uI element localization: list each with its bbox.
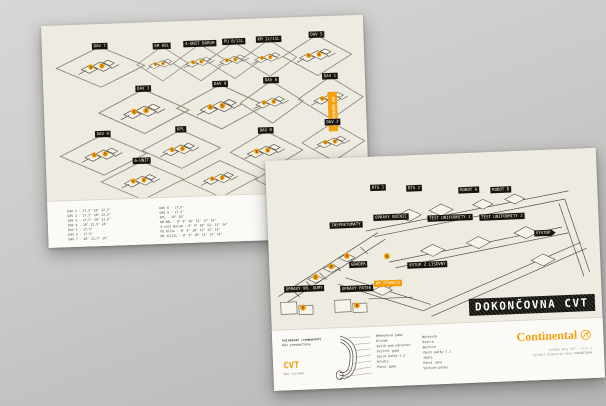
machine-label: 6-UNIT [133, 157, 151, 164]
machine-label: KM 08L [153, 42, 171, 49]
machine-tile: DAV 6 [239, 79, 304, 125]
cvt-sub-label: Náš výrobek [283, 372, 304, 376]
tire-labels-right: Nárazník Kostra Bočnice Vpich patky č.1 … [422, 334, 452, 372]
label-opravy-patek: OPRAVY PATEK [340, 285, 373, 293]
machine-label: KM 12/11L [256, 36, 282, 43]
machine-label: DAV 7 [92, 43, 108, 50]
machine-label: 4-UNIT BARUM [183, 40, 216, 48]
legend-column-2: DAV 8 - 17,5" DAV 9 - 17,5" KPL - 18" 20… [159, 204, 228, 239]
legend-column-1: DAV 1 - 17,5" 20" 22,5" DAV 2 - 17,5" 20… [67, 208, 111, 242]
tire-legend-band: Polohovač (component) Řez pneumatikou CV… [272, 317, 605, 391]
poster-footnotes: schéma haly CVT — list 1 výrobní dispozi… [532, 346, 592, 357]
machine-label: PU 8/11L [222, 38, 245, 45]
continental-logo: Continental [516, 328, 591, 343]
machine-label: DAV 9 [212, 81, 228, 88]
label-grader: GRADER [349, 261, 367, 268]
machine-tile: DAV 5 [281, 33, 352, 77]
label-rtg-2: RTG 2 [406, 185, 422, 192]
label-robot-a: ROBOT A [458, 186, 479, 193]
label-rtg-1: RTG 1 [370, 184, 386, 191]
conveyor-side-tag: KM DOPRAVNÍK [327, 92, 338, 132]
machine-tile: DAV 7 [55, 44, 146, 89]
photo-backdrop: BB DAV 7 KM 08L 4-UNIT BARUM PU 8/11L KM… [0, 0, 606, 406]
machine-label: DAV 2 [325, 119, 341, 126]
machine-label: DAV 5 [309, 31, 325, 38]
machine-label: DAV 6 [263, 77, 279, 84]
floorplan-poster: BBB BB BB RTG 1 RTG 2 ROBOT A ROBOT B OP… [265, 148, 605, 391]
label-inspektomaty: INSPEKTOMATY [330, 221, 363, 229]
cvt-mark: CVT [283, 362, 300, 372]
machine-label: DAV 3 [135, 85, 151, 92]
continental-horse-icon [580, 329, 591, 340]
machine-label: KPL [175, 126, 186, 133]
machine-label: DAV 1 [322, 73, 338, 80]
tire-legend-heading: Polohovač (component) Řez pneumatikou [282, 337, 322, 348]
machine-label: DAV 8 [258, 127, 274, 134]
label-robot-b: ROBOT B [490, 186, 511, 193]
continental-wordmark: Continental [516, 328, 577, 344]
tire-labels-left: Běhounová guma Klínek Vpich pod nárazník… [376, 332, 411, 370]
machine-label: DAV 4 [95, 131, 111, 138]
label-km-stanice: KM STANICE [374, 280, 402, 287]
